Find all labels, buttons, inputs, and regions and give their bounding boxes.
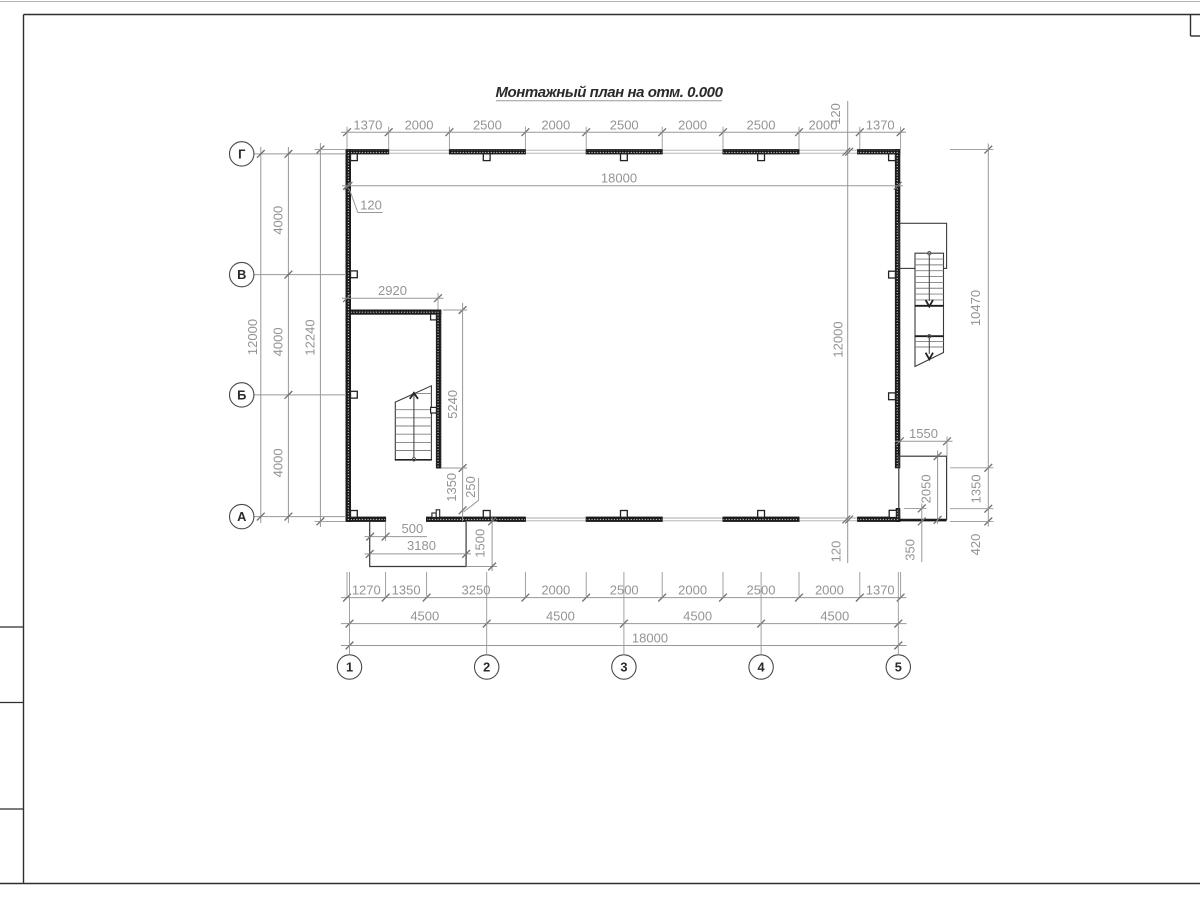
svg-text:1270: 1270 [352, 583, 381, 598]
svg-text:1: 1 [346, 660, 353, 675]
svg-text:2000: 2000 [678, 117, 707, 132]
svg-text:4: 4 [758, 660, 766, 675]
svg-text:4000: 4000 [271, 327, 286, 356]
svg-text:500: 500 [402, 521, 424, 536]
svg-text:1350: 1350 [392, 583, 421, 598]
svg-text:2500: 2500 [473, 117, 502, 132]
svg-text:12000: 12000 [245, 319, 260, 355]
svg-text:3180: 3180 [407, 538, 436, 553]
svg-text:4500: 4500 [410, 609, 439, 624]
svg-text:5: 5 [895, 660, 902, 675]
svg-text:2: 2 [483, 660, 490, 675]
svg-text:18000: 18000 [601, 171, 637, 186]
svg-text:1550: 1550 [909, 426, 938, 441]
svg-text:2000: 2000 [541, 583, 570, 598]
svg-text:2500: 2500 [747, 117, 776, 132]
svg-text:12240: 12240 [303, 319, 318, 355]
svg-text:2920: 2920 [378, 283, 407, 298]
svg-text:3250: 3250 [462, 583, 491, 598]
svg-text:1370: 1370 [866, 117, 895, 132]
svg-text:4000: 4000 [271, 448, 286, 477]
svg-text:3: 3 [620, 660, 627, 675]
svg-text:4500: 4500 [820, 609, 849, 624]
svg-text:Г: Г [238, 147, 245, 162]
svg-text:2050: 2050 [919, 474, 934, 503]
svg-text:1500: 1500 [472, 529, 487, 558]
svg-text:18000: 18000 [632, 631, 668, 646]
svg-text:А: А [237, 509, 246, 524]
svg-text:1370: 1370 [866, 583, 895, 598]
svg-text:2500: 2500 [610, 117, 639, 132]
svg-text:4500: 4500 [546, 609, 575, 624]
svg-text:Монтажный план на отм. 0.000: Монтажный план на отм. 0.000 [496, 84, 724, 101]
svg-text:120: 120 [828, 103, 843, 125]
svg-text:250: 250 [463, 476, 478, 498]
svg-text:1350: 1350 [969, 474, 984, 503]
svg-text:350: 350 [903, 539, 918, 561]
svg-text:2000: 2000 [405, 117, 434, 132]
svg-text:2000: 2000 [815, 583, 844, 598]
svg-text:Б: Б [237, 388, 246, 403]
svg-text:5240: 5240 [445, 390, 460, 419]
svg-text:120: 120 [360, 198, 382, 213]
svg-text:2000: 2000 [678, 583, 707, 598]
svg-text:420: 420 [968, 534, 983, 556]
svg-text:12000: 12000 [830, 321, 845, 357]
svg-text:120: 120 [829, 541, 844, 563]
svg-text:2000: 2000 [541, 117, 570, 132]
svg-text:4000: 4000 [271, 206, 286, 235]
svg-text:10470: 10470 [968, 290, 983, 326]
svg-text:1370: 1370 [353, 117, 382, 132]
svg-text:4500: 4500 [683, 609, 712, 624]
svg-text:1350: 1350 [444, 473, 459, 502]
svg-text:В: В [237, 267, 246, 282]
